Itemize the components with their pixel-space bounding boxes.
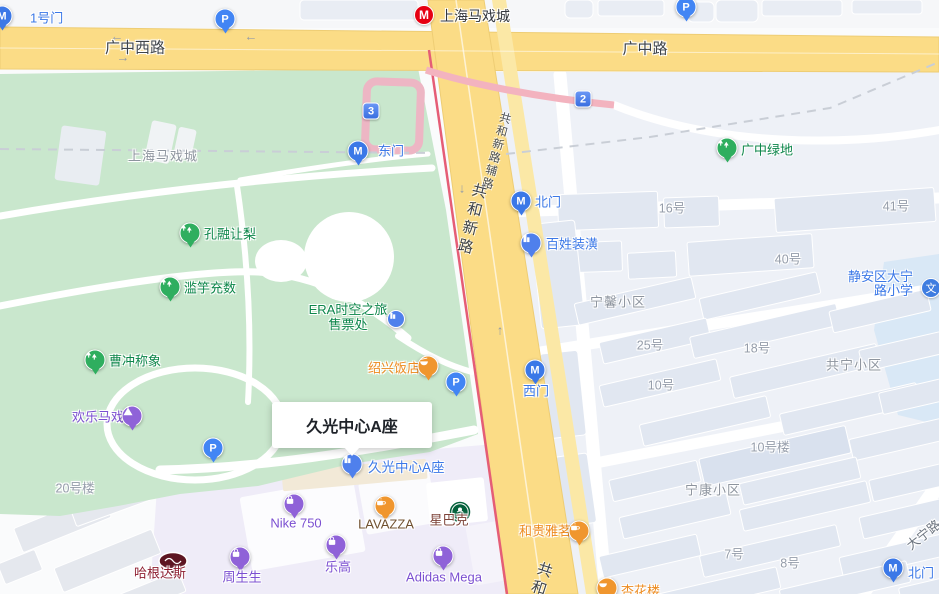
restaurant-poi-pin[interactable] (597, 578, 618, 594)
metro-gate-pin-east[interactable]: M (348, 141, 369, 162)
poi-pin[interactable] (387, 310, 405, 328)
building-label: 18号 (744, 338, 770, 357)
bus-route-badge-3[interactable]: 3 (363, 103, 380, 120)
info-bubble-title: 久光中心A座 (306, 413, 398, 437)
area-label: 宁康小区 (685, 480, 741, 499)
building-label: 7号 (724, 544, 743, 563)
business-poi-pin[interactable] (521, 233, 542, 254)
metro-gate-label[interactable]: 东门 (378, 141, 404, 160)
school-label[interactable]: 静安区大宁路小学 (845, 270, 913, 298)
metro-logo-icon: M (0, 6, 13, 27)
cafe-poi-pin[interactable] (375, 496, 396, 517)
building-label: 16号 (659, 198, 685, 217)
road-direction-arrow: ↓ (459, 181, 466, 196)
circus-tent-icon (122, 406, 143, 427)
metro-gate-label[interactable]: 北门 (908, 563, 934, 582)
building-icon (342, 454, 363, 475)
trees-icon (160, 277, 181, 298)
road-direction-arrow: ↑ (497, 323, 504, 338)
shopping-bag-icon (230, 547, 251, 568)
poi-label[interactable]: 百姓装潢 (546, 234, 598, 253)
poi-label[interactable]: 广中绿地 (741, 140, 793, 159)
metro-logo-icon: M (883, 558, 904, 579)
parking-icon: P (215, 9, 236, 30)
metro-station-label[interactable]: 上海马戏城 (440, 6, 510, 26)
poi-label[interactable]: 乐高 (325, 557, 351, 576)
poi-label[interactable]: 周生生 (222, 567, 261, 586)
parking-icon: P (446, 372, 467, 393)
school-icon[interactable]: 文 (921, 278, 939, 298)
metro-logo-icon: M (511, 191, 532, 212)
shop-poi-pin[interactable] (284, 494, 305, 515)
park-poi-pin[interactable] (85, 350, 106, 371)
bus-route-badge-2[interactable]: 2 (575, 91, 592, 108)
info-bubble[interactable]: 久光中心A座 (272, 402, 432, 448)
metro-gate-label[interactable]: 北门 (535, 192, 561, 211)
poi-label[interactable]: 星巴克 (429, 510, 468, 529)
shop-poi-pin[interactable] (326, 535, 347, 556)
metro-gate-pin-north2[interactable]: M (883, 558, 904, 579)
metro-station-logo-icon[interactable]: M (414, 5, 434, 25)
area-label: 上海马戏城 (128, 146, 198, 165)
metro-logo-icon: M (348, 141, 369, 162)
business-poi-pin[interactable] (342, 454, 363, 475)
coffee-cup-icon (375, 496, 396, 517)
poi-label[interactable]: LAVAZZA (358, 517, 414, 532)
trees-icon (180, 223, 201, 244)
poi-label[interactable]: 哈根达斯 (134, 563, 186, 582)
coffee-cup-icon (569, 521, 590, 542)
poi-label[interactable]: 杏花楼 (621, 581, 660, 594)
poi-label[interactable]: 滥竽充数 (184, 278, 236, 297)
bowl-icon (418, 356, 439, 377)
building-icon (521, 233, 542, 254)
building-label: 41号 (883, 196, 909, 215)
shop-poi-pin[interactable] (433, 546, 454, 567)
road-label-guangzhong: 广中路 (622, 38, 667, 59)
road-direction-arrow: ← (245, 29, 258, 44)
shopping-bag-icon (326, 535, 347, 556)
map-viewport[interactable]: ← ← → ↓ ↑ 广中西路 广中路 共和新路 共和新路辅路 共和新路 大宁路 … (0, 0, 939, 594)
trees-icon (717, 138, 738, 159)
shop-poi-pin[interactable] (122, 406, 143, 427)
metro-gate-label[interactable]: 1号门 (30, 8, 63, 27)
bowl-icon (597, 578, 618, 594)
building-label: 25号 (637, 335, 663, 354)
metro-gate-pin-west[interactable]: M (525, 360, 546, 381)
parking-pin[interactable]: P (676, 0, 697, 18)
building-label: 10号 (648, 375, 674, 394)
park-poi-pin[interactable] (717, 138, 738, 159)
area-label: 宁馨小区 (590, 292, 646, 311)
metro-logo-icon: M (525, 360, 546, 381)
parking-pin[interactable]: P (215, 9, 236, 30)
metro-gate-label[interactable]: 西门 (523, 381, 549, 400)
shopping-bag-icon (433, 546, 454, 567)
shopping-bag-icon (284, 494, 305, 515)
poi-label[interactable]: 和贵雅茗 (519, 521, 571, 540)
trees-icon (85, 350, 106, 371)
metro-gate-pin-north[interactable]: M (511, 191, 532, 212)
poi-label[interactable]: Adidas Mega (406, 570, 482, 585)
shop-poi-pin[interactable] (230, 547, 251, 568)
poi-label[interactable]: 曹冲称象 (109, 351, 161, 370)
poi-label[interactable]: 久光中心A座 (368, 456, 445, 476)
building-label: 8号 (780, 553, 799, 572)
area-label: 共宁小区 (826, 355, 882, 374)
building-label: 10号楼 (751, 437, 790, 456)
parking-icon: P (676, 0, 697, 18)
poi-label[interactable]: 绍兴饭店 (368, 358, 420, 377)
park-poi-pin[interactable] (160, 277, 181, 298)
parking-icon: P (203, 438, 224, 459)
park-poi-pin[interactable] (180, 223, 201, 244)
poi-label[interactable]: 欢乐马戏 (72, 407, 124, 426)
era-ticket-office-label[interactable]: ERA时空之旅 售票处 (302, 302, 394, 332)
road-label-guangzhong-west: 广中西路 (105, 37, 165, 58)
building-label: 20号楼 (56, 478, 95, 497)
restaurant-poi-pin[interactable] (418, 356, 439, 377)
poi-label[interactable]: 孔融让梨 (204, 224, 256, 243)
parking-pin[interactable]: P (446, 372, 467, 393)
poi-label[interactable]: Nike 750 (270, 516, 321, 531)
metro-gate-pin-1[interactable]: M (0, 6, 13, 27)
building-icon (387, 310, 405, 328)
building-label: 40号 (775, 249, 801, 268)
parking-pin[interactable]: P (203, 438, 224, 459)
teahouse-poi-pin[interactable] (569, 521, 590, 542)
